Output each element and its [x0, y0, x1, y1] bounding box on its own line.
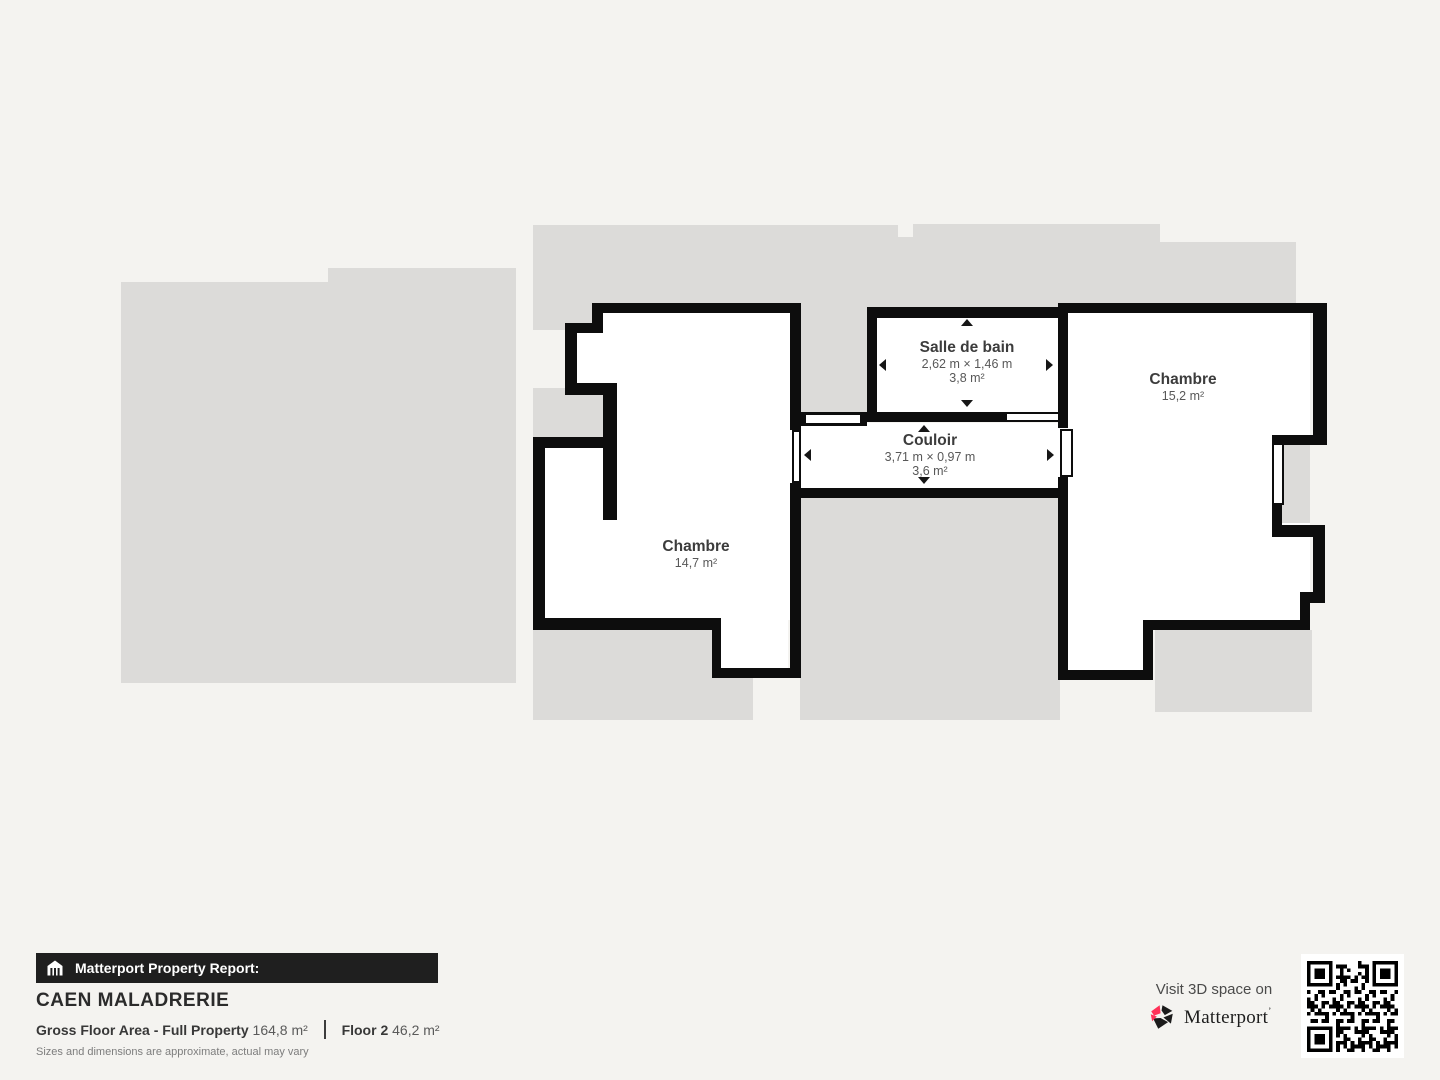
room-label-salle-de-bain: Salle de bain 2,62 m × 1,46 m 3,8 m² [920, 339, 1015, 385]
wall-segment [867, 307, 877, 422]
floor-stats: Gross Floor Area - Full Property 164,8 m… [36, 1020, 440, 1039]
room-area: 14,7 m² [662, 556, 729, 570]
wall-segment [1300, 592, 1325, 603]
silhouette-bay [1282, 445, 1310, 523]
room-area: 15,2 m² [1149, 389, 1216, 403]
silhouette-shape [328, 268, 516, 683]
room-chambre-left-nook [545, 448, 603, 620]
floor-label: Floor 2 [342, 1022, 389, 1038]
matterport-wordmark: Matterport’ [1184, 1006, 1272, 1029]
qr-code [1301, 954, 1404, 1058]
room-chambre-left-tab [712, 610, 788, 668]
wall-segment [1068, 303, 1322, 313]
silhouette-stairwell [795, 225, 868, 420]
wall-segment [533, 618, 721, 630]
dimension-arrow-down [918, 477, 930, 484]
report-bar-label: Matterport Property Report: [75, 960, 259, 976]
room-label-couloir: Couloir 3,71 m × 0,97 m 3,6 m² [885, 432, 976, 478]
floor-value: 46,2 m² [392, 1022, 439, 1038]
report-title-bar: Matterport Property Report: [36, 953, 438, 983]
silhouette-shape [800, 498, 1060, 720]
wall-segment [1313, 303, 1327, 445]
property-name: CAEN MALADRERIE [36, 990, 229, 1012]
dimension-arrow-up [918, 425, 930, 432]
room-chambre-right-lower [1068, 620, 1143, 670]
wall-segment [1058, 477, 1068, 680]
page: { "floor_plan": { "rooms": [ {"name":"Sa… [0, 0, 1440, 1080]
room-dimensions: 3,71 m × 0,97 m [885, 450, 976, 464]
stair-opening [806, 415, 860, 423]
dimension-arrow-up [961, 319, 973, 326]
wall-segment [790, 483, 801, 678]
room-name: Chambre [662, 538, 729, 556]
disclaimer-text: Sizes and dimensions are approximate, ac… [36, 1046, 309, 1058]
matterport-pinwheel-icon [1147, 1002, 1177, 1032]
wall-segment [1058, 303, 1068, 428]
wall-segment [603, 395, 617, 520]
visit-3d-text: Visit 3D space on [1151, 981, 1277, 998]
wall-segment [712, 668, 801, 678]
room-name: Chambre [1149, 371, 1216, 389]
door-leaf [1060, 429, 1073, 477]
window [1272, 443, 1284, 505]
wall-segment [1143, 630, 1153, 670]
matterport-logo: Matterport’ [1147, 1002, 1272, 1032]
stats-divider [324, 1020, 326, 1039]
room-chambre-left-alcove [577, 333, 603, 383]
room-label-chambre-right: Chambre 15,2 m² [1149, 371, 1216, 403]
door-leaf [792, 430, 801, 483]
wall-segment [790, 303, 801, 430]
wall-segment [790, 488, 1068, 498]
dimension-arrow-down [961, 400, 973, 407]
room-name: Salle de bain [920, 339, 1015, 357]
dimension-arrow-right [1046, 359, 1053, 371]
room-label-chambre-left: Chambre 14,7 m² [662, 538, 729, 570]
gross-floor-area-value: 164,8 m² [253, 1022, 308, 1038]
wall-segment [867, 412, 1007, 422]
room-chambre-left [603, 313, 790, 620]
door-opening [1007, 412, 1058, 422]
dimension-arrow-left [879, 359, 886, 371]
wall-segment [1058, 670, 1153, 680]
dimension-arrow-left [804, 449, 811, 461]
dimension-arrow-right [1047, 449, 1054, 461]
room-name: Couloir [885, 432, 976, 450]
room-area: 3,6 m² [885, 464, 976, 478]
wall-segment [533, 437, 545, 630]
trademark-mark: ’ [1268, 1006, 1271, 1016]
floor-plan: Salle de bain 2,62 m × 1,46 m 3,8 m² Cou… [0, 0, 1440, 1080]
wall-segment [565, 383, 617, 395]
wall-segment [867, 307, 1068, 318]
wall-segment [1143, 620, 1310, 630]
room-dimensions: 2,62 m × 1,46 m [920, 357, 1015, 371]
wall-segment [592, 303, 801, 313]
silhouette-shape [533, 388, 605, 438]
silhouette-shape [121, 282, 328, 683]
house-icon [45, 958, 65, 978]
room-area: 3,8 m² [920, 371, 1015, 385]
silhouette-shape [1155, 630, 1312, 712]
gross-floor-area-label: Gross Floor Area - Full Property [36, 1022, 249, 1038]
